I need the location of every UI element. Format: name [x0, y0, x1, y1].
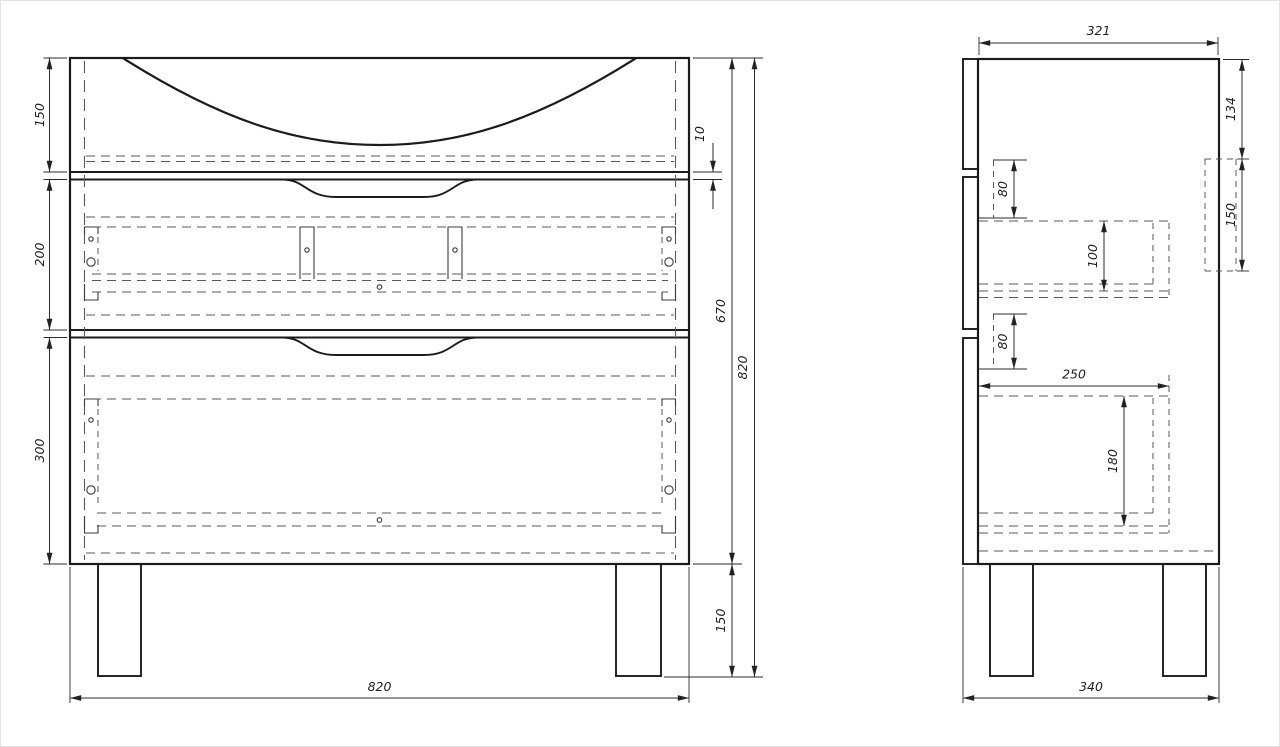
side-leg-back [1163, 564, 1206, 676]
side-leg-front [990, 564, 1033, 676]
side-view: 321 134 150 80 100 [963, 23, 1249, 703]
dim-label-drawer2-front-overlap: 80 [995, 334, 1010, 350]
dim-label-leg-height: 150 [713, 609, 728, 633]
drawer1-slide-bracket-mid-left [300, 227, 314, 279]
drawer2-handle-notch [282, 338, 478, 356]
dim-label-bottom-section-height: 300 [32, 439, 47, 463]
drawing-canvas: 150 200 300 10 670 150 820 [0, 0, 1280, 747]
drawer1-slide-bracket-left [85, 227, 99, 300]
dim-front-overall-width: 820 [70, 567, 689, 703]
drawer2-slide-bracket-right [662, 399, 676, 533]
drawer2-slide-bracket-left [85, 399, 99, 533]
drawer1-slide-bracket-mid-right [448, 227, 462, 279]
side-front-panel-drawer1 [963, 177, 978, 329]
drawer1-slide-bracket-right [662, 227, 676, 300]
dim-label-drawer2-box-height: 180 [1105, 449, 1120, 473]
front-legs [98, 564, 661, 676]
dim-front-right-stack: 10 670 150 820 [664, 58, 763, 677]
drawer1-handle-notch [282, 180, 478, 198]
front-sink-cutout-curve [124, 59, 635, 145]
side-carcass-outline [963, 59, 1219, 564]
dim-side-drawer1: 80 100 [979, 160, 1104, 291]
side-front-panel-drawer2 [963, 338, 978, 564]
dim-label-overall-depth: 340 [1079, 679, 1103, 694]
screw-hole [377, 285, 382, 290]
dim-label-middle-section-height: 200 [32, 243, 47, 267]
dim-label-back-top-offset: 134 [1223, 97, 1238, 121]
front-carcass-outline [70, 58, 689, 564]
dim-side-drawer2: 80 250 180 [979, 314, 1169, 526]
dim-label-overall-width: 820 [368, 679, 392, 694]
dim-label-top-reveal-gap: 10 [692, 126, 707, 142]
side-legs [990, 564, 1206, 676]
side-drawer1-box-hidden [979, 221, 1169, 298]
dim-front-left-stack: 150 200 300 [32, 58, 67, 564]
technical-drawing: 150 200 300 10 670 150 820 [1, 1, 1279, 746]
dim-side-overall-depth: 340 [963, 567, 1219, 703]
front-drawer2 [85, 338, 676, 554]
screw-hole [377, 518, 382, 523]
dim-label-drawer2-box-depth: 250 [1062, 367, 1086, 382]
front-view: 150 200 300 10 670 150 820 [32, 58, 763, 703]
dim-label-drawer1-box-height: 100 [1085, 244, 1100, 268]
dim-label-back-panel-height: 150 [1223, 203, 1238, 227]
front-side-panel-hidden-lines [85, 61, 676, 560]
dim-label-inner-depth: 321 [1087, 23, 1111, 38]
side-front-panel-top [963, 59, 978, 169]
front-leg-right [616, 564, 661, 676]
dim-side-inner-depth: 321 [979, 23, 1218, 55]
dim-label-top-section-height: 150 [32, 103, 47, 127]
dim-label-carcass-height: 670 [713, 299, 728, 323]
dim-label-overall-height: 820 [735, 356, 750, 380]
front-drawer1 [85, 180, 676, 316]
front-leg-left [98, 564, 141, 676]
side-drawer2-box-hidden [979, 396, 1218, 551]
dim-label-drawer1-front-overlap: 80 [995, 181, 1010, 197]
